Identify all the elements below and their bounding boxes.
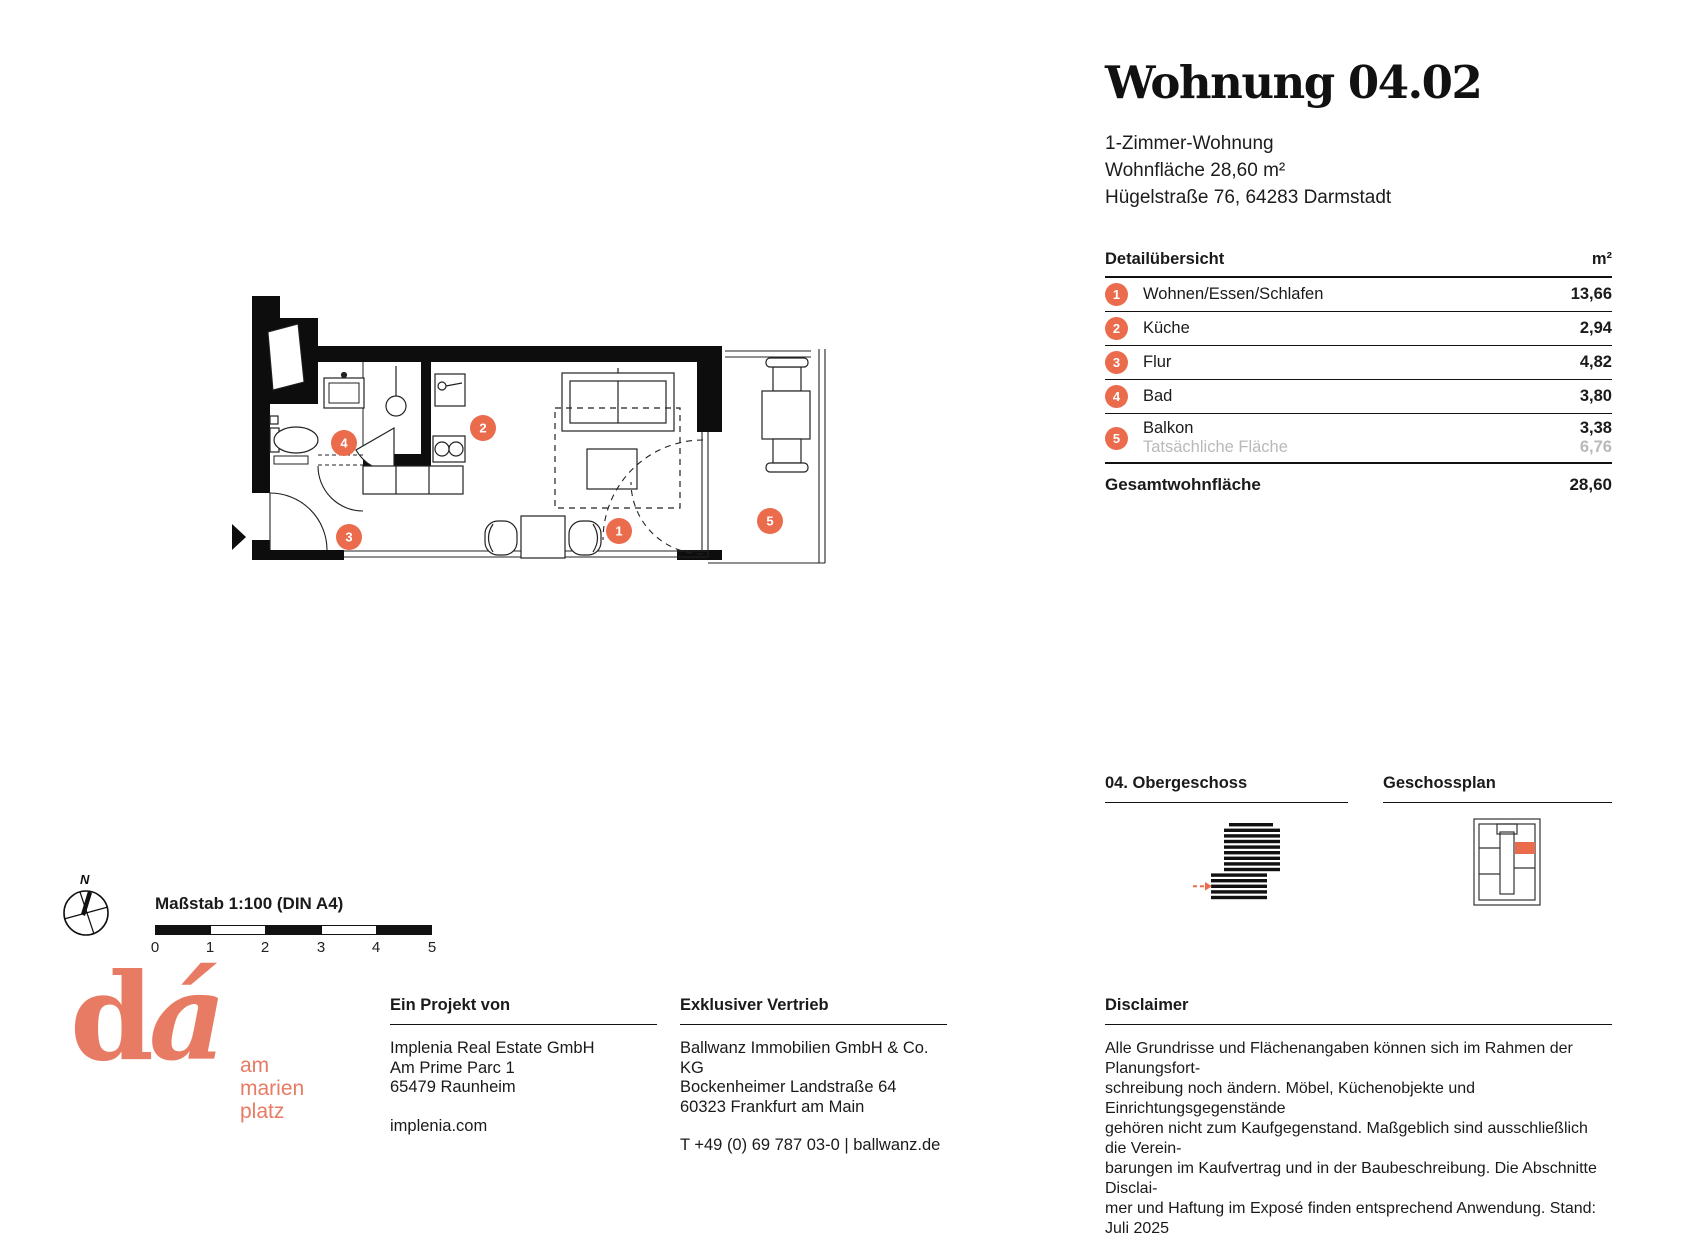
room-number-badge: 4 bbox=[1105, 385, 1128, 408]
page-title: Wohnung 04.02 bbox=[1105, 56, 1481, 109]
scale-tick: 5 bbox=[428, 939, 436, 956]
table-row: 3 Flur 4,82 bbox=[1105, 346, 1612, 380]
apartment-area: Wohnfläche 28,60 m² bbox=[1105, 157, 1391, 184]
floor-location-icon bbox=[1473, 818, 1541, 906]
wall-fixture bbox=[270, 416, 278, 424]
footer-sales: Exklusiver Vertrieb Ballwanz Immobilien … bbox=[680, 996, 947, 1156]
room-label-main: Balkon bbox=[1143, 419, 1580, 438]
apartment-address: Hügelstraße 76, 64283 Darmstadt bbox=[1105, 184, 1391, 211]
footer-project: Ein Projekt von Implenia Real Estate Gmb… bbox=[390, 996, 657, 1136]
room-label-sub: Tatsächliche Fläche bbox=[1143, 438, 1580, 457]
footer-project-address: Implenia Real Estate GmbH Am Prime Parc … bbox=[390, 1039, 657, 1136]
entrance-arrow-icon bbox=[232, 524, 246, 550]
current-floor-arrow-icon bbox=[1193, 882, 1212, 891]
table-row: 5 Balkon Tatsächliche Fläche 3,38 6,76 bbox=[1105, 414, 1612, 464]
svg-text:N: N bbox=[80, 872, 90, 887]
floor-section-heading: 04. Obergeschoss bbox=[1105, 774, 1348, 803]
project-website-link[interactable]: implenia.com bbox=[390, 1117, 657, 1137]
scale-bar bbox=[155, 925, 432, 935]
room-label: Balkon Tatsächliche Fläche bbox=[1143, 419, 1580, 457]
living-furniture bbox=[485, 368, 680, 558]
scale-tick: 4 bbox=[372, 939, 380, 956]
scale-label: Maßstab 1:100 (DIN A4) bbox=[155, 894, 343, 914]
apartment-facts: 1-Zimmer-Wohnung Wohnfläche 28,60 m² Hüg… bbox=[1105, 130, 1391, 211]
scale-tick: 2 bbox=[261, 939, 269, 956]
room-label: Flur bbox=[1143, 353, 1580, 372]
detail-table: Detailübersicht m² 1 Wohnen/Essen/Schlaf… bbox=[1105, 250, 1612, 495]
apartment-type: 1-Zimmer-Wohnung bbox=[1105, 130, 1391, 157]
unit-highlight bbox=[1515, 842, 1535, 854]
kitchen bbox=[363, 374, 465, 494]
plan-section-heading: Geschossplan bbox=[1383, 774, 1612, 803]
room-number-badge: 3 bbox=[1105, 351, 1128, 374]
footer-sales-heading: Exklusiver Vertrieb bbox=[680, 996, 947, 1025]
threshold-shelf bbox=[274, 456, 308, 464]
kitchen-cabinet bbox=[435, 374, 465, 406]
room-area: 3,80 bbox=[1580, 387, 1612, 406]
dining-chair bbox=[569, 521, 601, 555]
room-label: Küche bbox=[1143, 319, 1580, 338]
footer-disclaimer: Disclaimer Alle Grundrisse und Flächenan… bbox=[1105, 996, 1612, 1239]
disclaimer-text: Alle Grundrisse und Flächenangaben könne… bbox=[1105, 1039, 1612, 1239]
room-label: Bad bbox=[1143, 387, 1580, 406]
brand-wordmark: am marien platz bbox=[240, 1054, 304, 1123]
compass-icon: N bbox=[57, 870, 117, 940]
room-area: 2,94 bbox=[1580, 319, 1612, 338]
room-label: Wohnen/Essen/Schlafen bbox=[1143, 285, 1571, 304]
total-label: Gesamtwohnfläche bbox=[1105, 475, 1261, 495]
total-value: 28,60 bbox=[1569, 475, 1612, 495]
svg-text:1: 1 bbox=[615, 524, 622, 539]
table-row: 4 Bad 3,80 bbox=[1105, 380, 1612, 414]
dining-chair bbox=[485, 521, 517, 555]
balcony-furniture bbox=[762, 358, 810, 472]
building-floor-icon bbox=[1193, 815, 1288, 907]
floorplan-drawing: 1 2 3 4 5 bbox=[222, 288, 837, 573]
coffee-table bbox=[587, 449, 637, 489]
svg-text:5: 5 bbox=[766, 514, 773, 529]
bath-door-swing bbox=[318, 466, 363, 511]
room-number-badge: 2 bbox=[1105, 317, 1128, 340]
room-area: 13,66 bbox=[1571, 285, 1612, 304]
table-row: 2 Küche 2,94 bbox=[1105, 312, 1612, 346]
kitchen-counter bbox=[363, 466, 463, 494]
footer-disclaimer-heading: Disclaimer bbox=[1105, 996, 1612, 1025]
balcony-table bbox=[762, 391, 810, 439]
room-area-sub: 6,76 bbox=[1580, 438, 1612, 457]
svg-text:2: 2 bbox=[479, 421, 486, 436]
brand-logo: dá bbox=[70, 958, 222, 1078]
total-row: Gesamtwohnfläche 28,60 bbox=[1105, 464, 1612, 495]
footer-sales-address: Ballwanz Immobilien GmbH & Co. KG Bocken… bbox=[680, 1039, 947, 1156]
balcony-chair bbox=[773, 439, 801, 463]
shaft-panel bbox=[268, 324, 304, 390]
svg-text:4: 4 bbox=[340, 436, 348, 451]
shower-basin bbox=[386, 396, 406, 416]
toilet-bowl bbox=[274, 427, 318, 453]
footer-project-heading: Ein Projekt von bbox=[390, 996, 657, 1025]
room-number-badge: 5 bbox=[1105, 427, 1128, 450]
sales-contact-link[interactable]: T +49 (0) 69 787 03-0 | ballwanz.de bbox=[680, 1136, 947, 1156]
svg-text:3: 3 bbox=[345, 530, 352, 545]
dining-table bbox=[521, 516, 565, 558]
entry-door-swing bbox=[270, 493, 327, 550]
room-area: 4,82 bbox=[1580, 353, 1612, 372]
unit-header: m² bbox=[1592, 250, 1612, 269]
balcony-chair bbox=[773, 367, 801, 391]
table-row: 1 Wohnen/Essen/Schlafen 13,66 bbox=[1105, 278, 1612, 312]
room-number-badge: 1 bbox=[1105, 283, 1128, 306]
detail-table-title: Detailübersicht bbox=[1105, 250, 1224, 269]
balcony-door-swing bbox=[631, 482, 703, 554]
scale-tick: 3 bbox=[317, 939, 325, 956]
room-area-main: 3,38 bbox=[1580, 419, 1612, 438]
room-area: 3,38 6,76 bbox=[1580, 419, 1612, 457]
detail-table-header: Detailübersicht m² bbox=[1105, 250, 1612, 278]
